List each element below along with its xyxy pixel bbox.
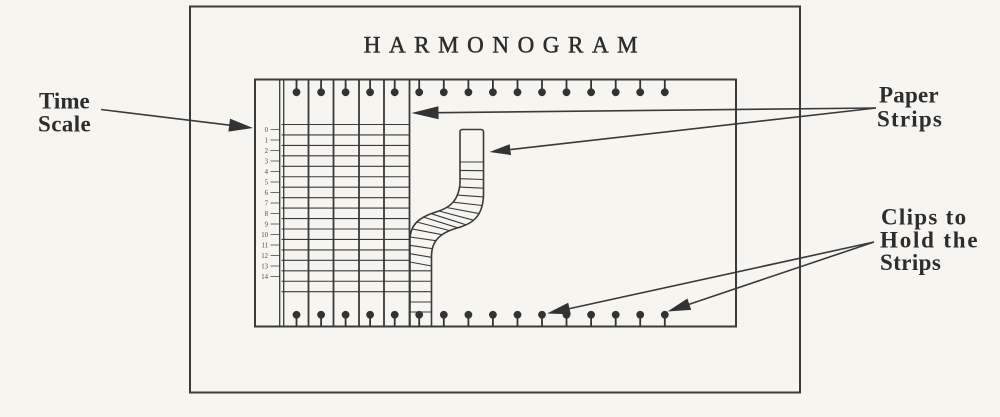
svg-text:Scale: Scale [38,112,91,137]
svg-text:Strips: Strips [880,250,941,275]
svg-text:8: 8 [265,211,269,218]
svg-text:13: 13 [261,264,268,271]
svg-text:HARMONOGRAM: HARMONOGRAM [364,33,646,58]
svg-text:Paper: Paper [879,83,939,108]
svg-text:6: 6 [265,190,269,197]
svg-text:14: 14 [261,274,268,281]
svg-text:Hold the: Hold the [880,228,979,253]
svg-text:5: 5 [265,180,269,187]
svg-text:10: 10 [261,232,268,239]
svg-text:4: 4 [265,169,269,176]
svg-text:2: 2 [265,148,269,155]
svg-text:1: 1 [265,138,268,145]
svg-text:Strips: Strips [877,107,943,132]
svg-text:12: 12 [261,253,268,260]
svg-text:Time: Time [39,89,90,114]
svg-text:Clips to: Clips to [881,205,967,230]
svg-text:7: 7 [265,201,269,208]
svg-text:11: 11 [261,243,268,250]
svg-text:0: 0 [265,127,269,134]
svg-text:9: 9 [265,222,269,229]
svg-text:3: 3 [265,159,269,166]
